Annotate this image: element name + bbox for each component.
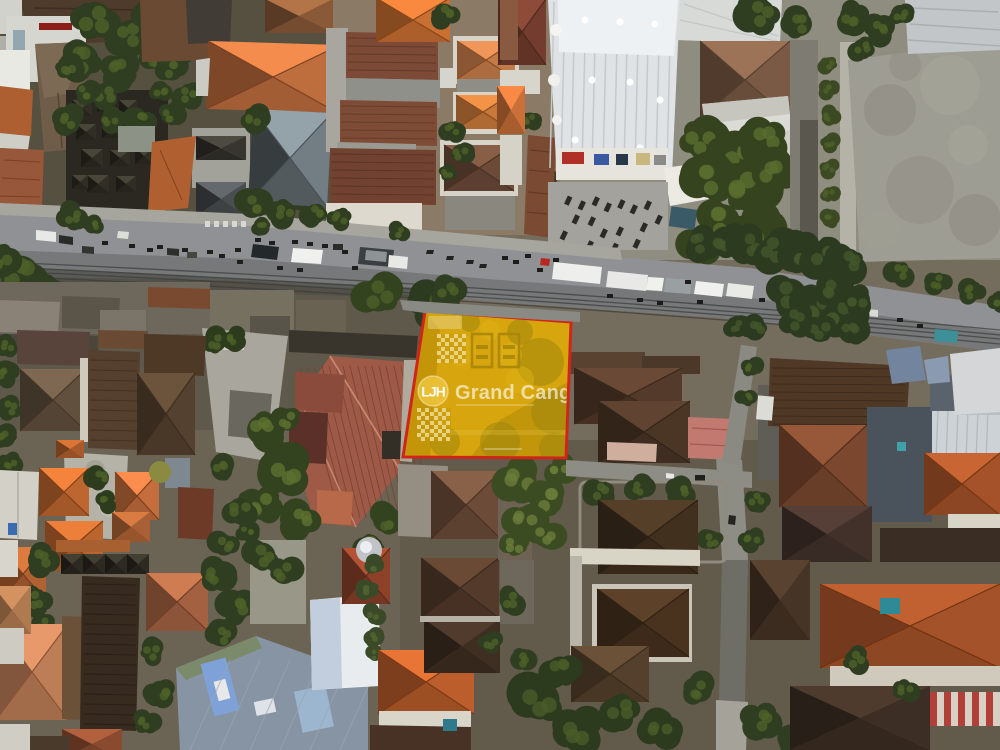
svg-text:LJH: LJH: [421, 384, 445, 400]
